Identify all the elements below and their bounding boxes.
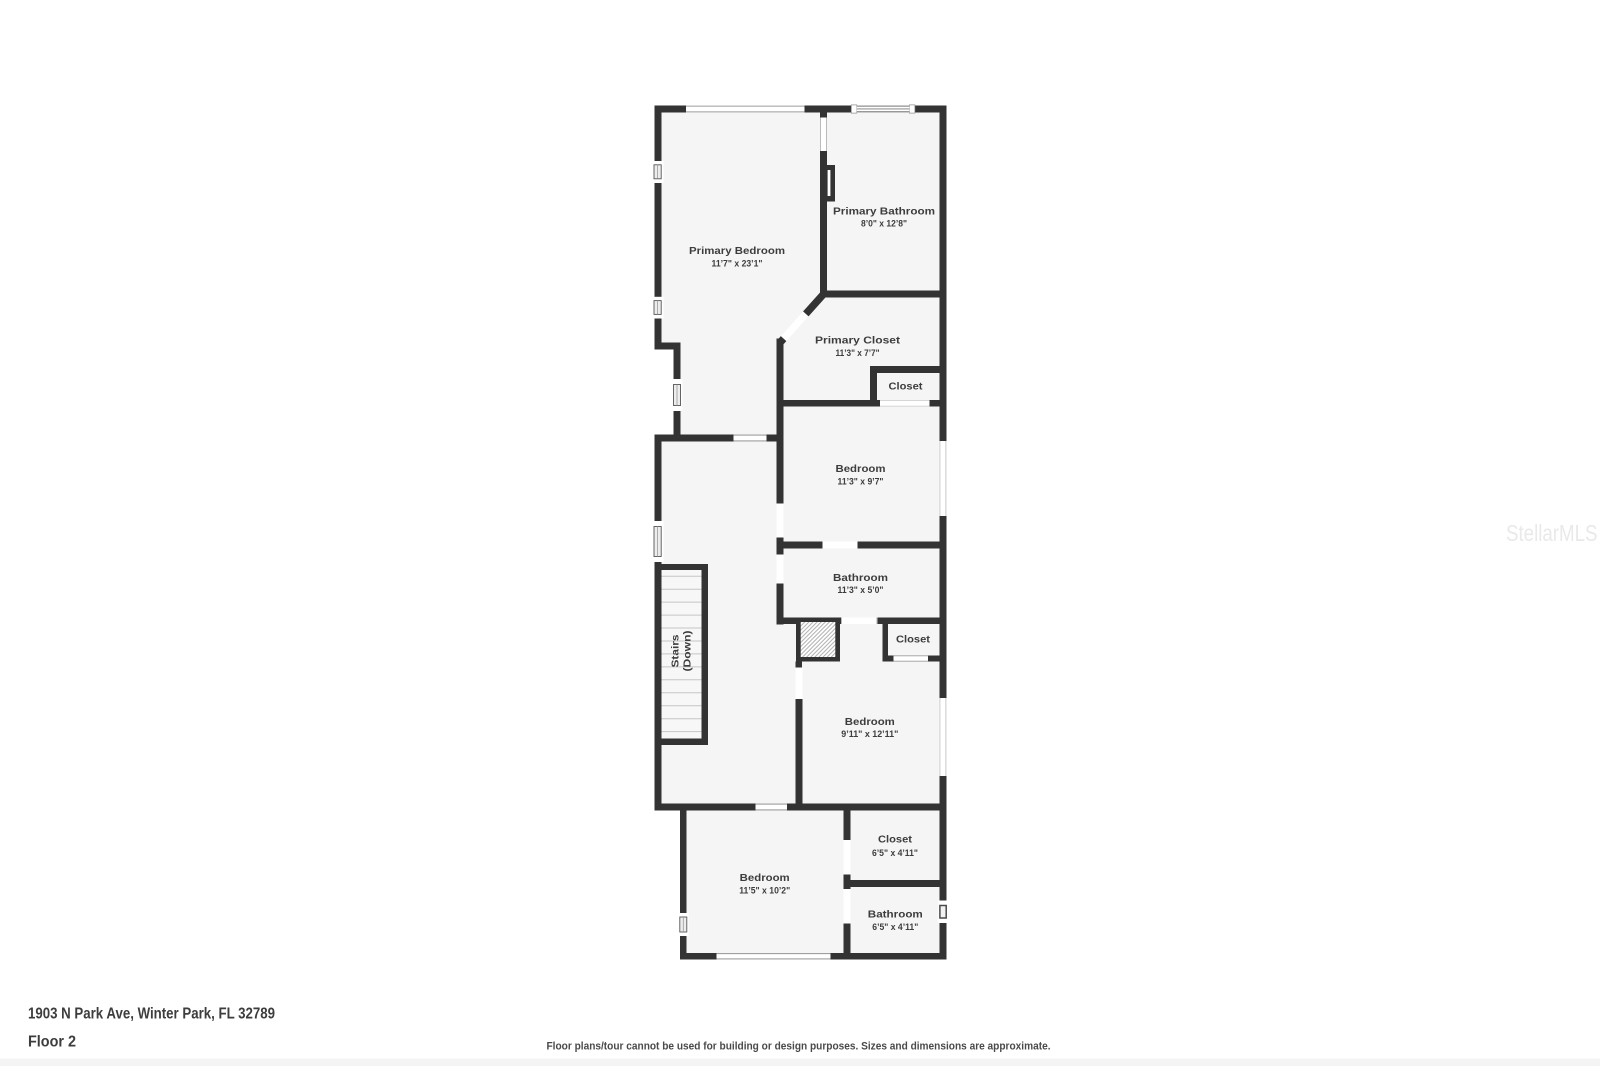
svg-text:Bedroom: Bedroom [845,716,895,728]
svg-text:6’5" x 4’11": 6’5" x 4’11" [872,922,918,932]
svg-text:Bathroom: Bathroom [833,572,888,584]
svg-text:Floor 2: Floor 2 [28,1034,76,1051]
svg-text:1903 N Park Ave, Winter Park,: 1903 N Park Ave, Winter Park, FL 32789 [28,1006,275,1023]
svg-text:11’3" x 7’7": 11’3" x 7’7" [836,348,880,358]
svg-text:Floor plans/tour cannot be use: Floor plans/tour cannot be used for buil… [547,1041,1051,1053]
svg-text:11’7" x 23’1": 11’7" x 23’1" [712,259,763,269]
svg-text:Closet: Closet [889,381,924,393]
svg-text:9’11" x 12’11": 9’11" x 12’11" [841,729,898,739]
svg-text:Primary Closet: Primary Closet [815,334,901,346]
svg-text:11’3" x 5’0": 11’3" x 5’0" [838,585,884,595]
svg-text:8’0" x 12’8": 8’0" x 12’8" [861,218,907,228]
svg-text:Bathroom: Bathroom [868,908,923,920]
svg-text:(Down): (Down) [683,631,694,672]
svg-text:Closet: Closet [878,833,913,845]
svg-text:StellarMLS: StellarMLS [1506,520,1598,546]
svg-text:Bedroom: Bedroom [836,463,886,475]
svg-text:11’5" x 10’2": 11’5" x 10’2" [739,886,790,896]
svg-text:6’5" x 4’11": 6’5" x 4’11" [872,848,918,858]
svg-text:Stairs: Stairs [671,634,682,668]
svg-text:Closet: Closet [896,633,931,645]
svg-text:11’3" x 9’7": 11’3" x 9’7" [838,476,884,486]
svg-text:Bedroom: Bedroom [740,872,790,884]
svg-text:Primary Bedroom: Primary Bedroom [689,245,785,257]
svg-text:Primary Bathroom: Primary Bathroom [833,205,935,217]
